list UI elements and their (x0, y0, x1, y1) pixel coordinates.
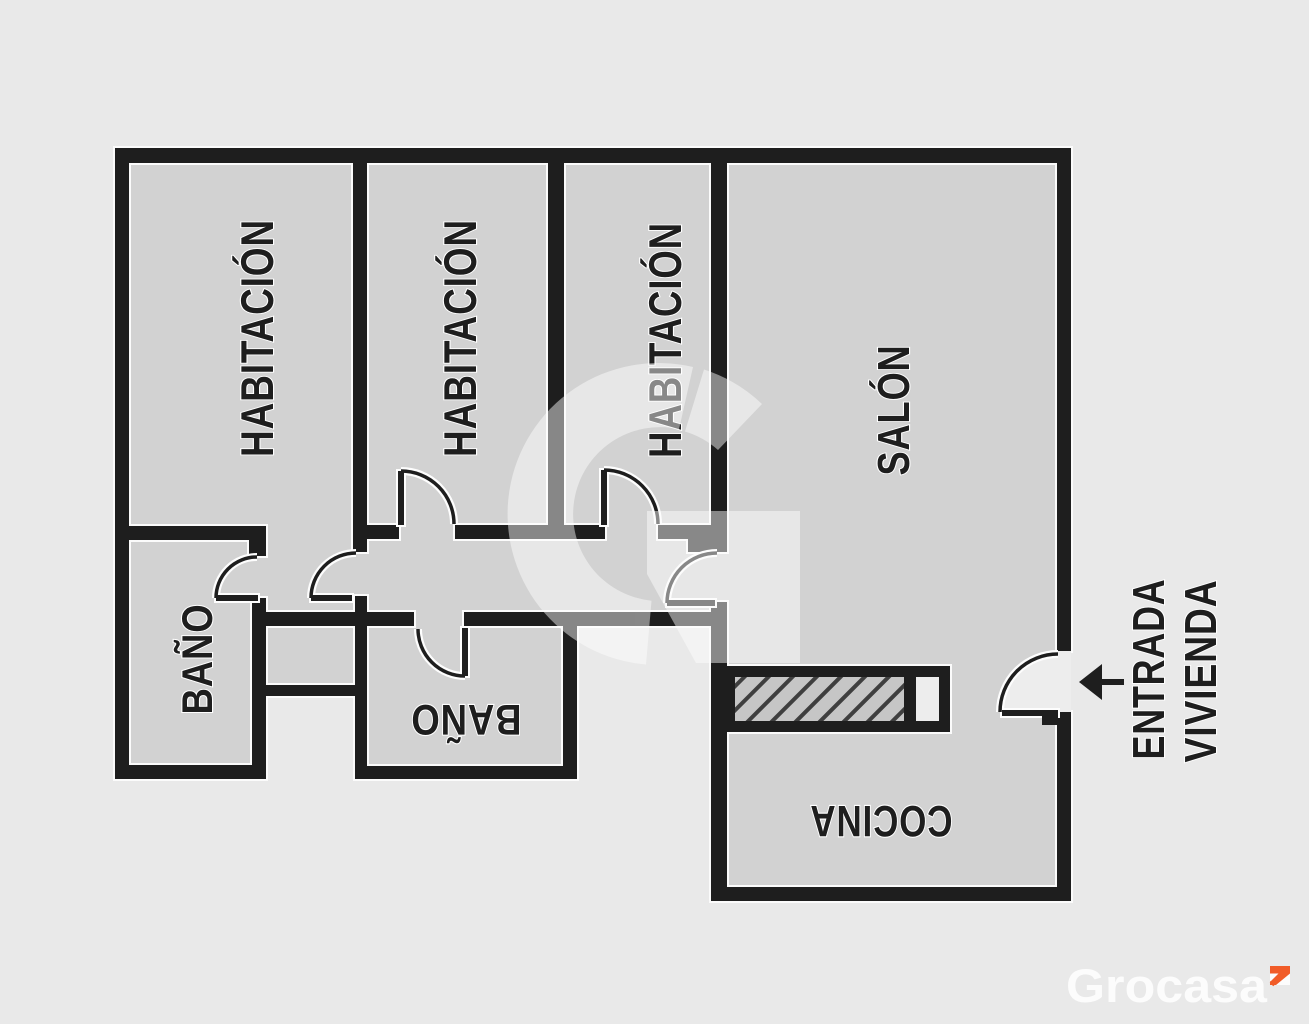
svg-text:HABITACIÓN: HABITACIÓN (231, 219, 283, 457)
svg-text:ENTRADA: ENTRADA (1123, 579, 1174, 760)
svg-text:BAÑO: BAÑO (173, 604, 222, 715)
svg-text:HABITACIÓN: HABITACIÓN (434, 219, 486, 457)
svg-text:Grocasa: Grocasa (1066, 959, 1268, 1012)
svg-text:BAÑO: BAÑO (411, 695, 522, 744)
svg-text:COCINA: COCINA (810, 796, 953, 845)
svg-text:SALÓN: SALÓN (868, 345, 919, 476)
svg-text:VIVIENDA: VIVIENDA (1175, 580, 1226, 763)
